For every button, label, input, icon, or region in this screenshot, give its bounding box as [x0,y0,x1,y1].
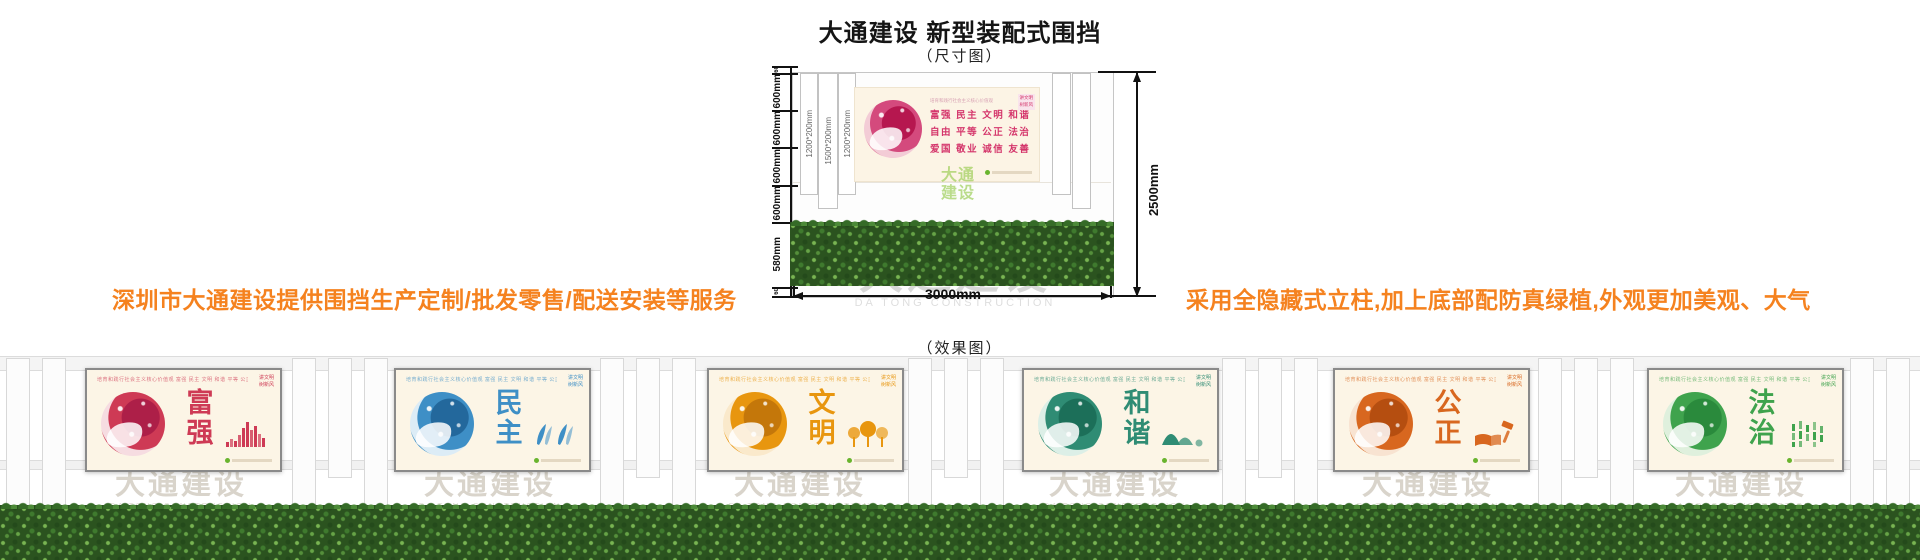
green-dot-icon [1473,458,1478,463]
page-title: 大通建设 新型装配式围挡 [0,13,1920,48]
segment-label: 60 [764,66,790,73]
civility-chip: 讲文明 树新风 [1018,94,1036,110]
trees-icon [846,418,890,448]
green-dot-icon [534,458,539,463]
slogan-header: 培育和践行社会主义核心价值观 富强 民主 文明 和谐 平等 公正 法治 爱国 敬… [97,376,248,383]
slogan-header: 培育和践行社会主义核心价值观 富强 民主 文明 和谐 平等 公正 法治 爱国 敬… [1659,376,1810,383]
segment-label: 60 [764,287,790,296]
fence-post [292,358,316,510]
arrowhead-up [1133,72,1141,82]
column-size-label: 1200*200mm [805,110,814,158]
fence-post [600,358,624,510]
civility-chip: 讲文明树新风 [1196,375,1212,389]
slogan-header: 培育和践行社会主义核心价值观 富强 民主 文明 和谐 平等 公正 法治 爱国 敬… [1034,376,1185,383]
papercut-circle-graphic [723,392,787,456]
arrowhead-down [1133,287,1141,297]
value-word: 法治 [1746,388,1778,448]
green-dot-icon [225,458,230,463]
fence-post [980,358,1004,510]
column-size-label: 1200*200mm [843,110,852,158]
fence-post [908,358,932,510]
value-row: 自由 平等 公正 法治 [930,124,1012,141]
total-width-label: 3000mm [793,286,1113,302]
civility-chip: 讲文明树新风 [1507,375,1523,389]
poster-canvas: 大通建设 新型装配式围挡 （尺寸图） 1200*200mm 1500*200mm… [0,0,1920,560]
segment-label: 600mm [764,185,790,222]
extension-tick [1098,71,1156,73]
fence-post [636,358,660,478]
micro-text-bar [1794,459,1834,462]
segment-label: 580mm [764,222,790,287]
poster-footer [1787,458,1834,463]
micro-text-bar [1480,459,1520,462]
poster-footer [1162,458,1209,463]
poster-panel-2: 培育和践行社会主义核心价值观 富强 民主 文明 和谐 平等 公正 法治 爱国 敬… [394,368,591,472]
green-dot-icon [847,458,852,463]
papercut-circle-graphic [1349,392,1413,456]
value-row: 富强 民主 文明 和谐 [930,107,1012,124]
fence-post [1850,358,1874,510]
effect-caption: （效果图） [0,337,1920,358]
hedge-strip [0,505,1920,560]
fence-post [1574,358,1598,478]
fence-post [1886,358,1910,510]
column-strip: 1200*200mm [800,73,818,195]
fence-post [328,358,352,478]
poster-panel-4: 培育和践行社会主义核心价值观 富强 民主 文明 和谐 平等 公正 法治 爱国 敬… [1022,368,1219,472]
hedge-planter [790,222,1114,286]
service-note: 深圳市大通建设提供围挡生产定制/批发零售/配送安装等服务 [112,281,737,315]
segment-label: 600mm [764,110,790,147]
micro-text-bar [232,459,272,462]
value-word: 和谐 [1121,388,1153,448]
poster-panel-5: 培育和践行社会主义核心价值观 富强 民主 文明 和谐 平等 公正 法治 爱国 敬… [1333,368,1530,472]
civility-chip: 讲文明树新风 [1821,375,1837,389]
value-row: 爱国 敬业 诚信 友善 [930,141,1012,158]
civility-chip: 讲文明树新风 [259,375,275,389]
total-height-label: 2500mm [1143,140,1163,240]
value-word: 民主 [493,388,525,448]
mountains-icon [1161,418,1205,448]
column-strip [1072,73,1091,209]
micro-text-bar [1169,459,1209,462]
poster-footer [1473,458,1520,463]
papercut-circle-graphic [410,392,474,456]
fence-post [6,358,30,510]
segment-label: 600mm [764,147,790,185]
column-strip [1052,73,1071,195]
people-icon [533,418,577,448]
papercut-circle-graphic [1038,392,1102,456]
bamboo-icon [1786,418,1830,448]
micro-text-bar [854,459,894,462]
dimension-caption: （尺寸图） [0,45,1920,66]
green-dot-icon [985,170,990,175]
datong-logo-watermark: 大通建设 [938,167,978,203]
poster-panel-3: 培育和践行社会主义核心价值观 富强 民主 文明 和谐 平等 公正 法治 爱国 敬… [707,368,904,472]
papercut-circle-graphic [101,392,165,456]
fence-post [42,358,66,510]
micro-text-bar [541,459,581,462]
slogan-header: 培育和践行社会主义核心价值观 富强 民主 文明 和谐 平等 公正 法治 爱国 敬… [719,376,870,383]
fence-post [1294,358,1318,510]
papercut-circle-graphic [864,100,922,158]
green-dot-icon [1787,458,1792,463]
dimension-line-right [1136,72,1138,297]
value-word: 富强 [184,388,216,448]
column-strip: 1500*200mm [818,73,838,209]
fence-post [1538,358,1562,510]
column-size-label: 1500*200mm [824,117,833,165]
slogan-header: 培育和践行社会主义核心价值观 富强 民主 文明 和谐 平等 公正 法治 爱国 敬… [1345,376,1496,383]
slogan-header: 培育和践行社会主义核心价值观 [930,98,1012,104]
micro-text-bar [992,171,1032,174]
papercut-circle-graphic [1663,392,1727,456]
effect-view: 大通建设DA TONG CONSTRUCTION大通建设DA TONG CONS… [0,356,1920,560]
value-word: 公正 [1432,388,1464,448]
feature-note: 采用全隐藏式立柱,加上底部配防真绿植,外观更加美观、大气 [1186,281,1811,315]
value-word: 文明 [806,388,838,448]
poster-panel-6: 培育和践行社会主义核心价值观 富强 民主 文明 和谐 平等 公正 法治 爱国 敬… [1647,368,1844,472]
slogan-header: 培育和践行社会主义核心价值观 富强 民主 文明 和谐 平等 公正 法治 爱国 敬… [406,376,557,383]
poster-footer [985,170,1032,175]
fence-post [944,358,968,478]
poster-footer [225,458,272,463]
book-gavel-icon [1472,418,1516,448]
poster-footer [534,458,581,463]
civility-chip: 讲文明树新风 [568,375,584,389]
fence-post [1258,358,1282,478]
civility-chip: 讲文明树新风 [881,375,897,389]
green-dot-icon [1162,458,1167,463]
city-bars-icon [224,418,268,448]
segment-label: 600mm [764,73,790,110]
poster-panel-1: 培育和践行社会主义核心价值观 富强 民主 文明 和谐 平等 公正 法治 爱国 敬… [85,368,282,472]
fence-post [1222,358,1246,510]
core-values-text: 培育和践行社会主义核心价值观 富强 民主 文明 和谐 自由 平等 公正 法治 爱… [930,98,1012,158]
poster-footer [847,458,894,463]
